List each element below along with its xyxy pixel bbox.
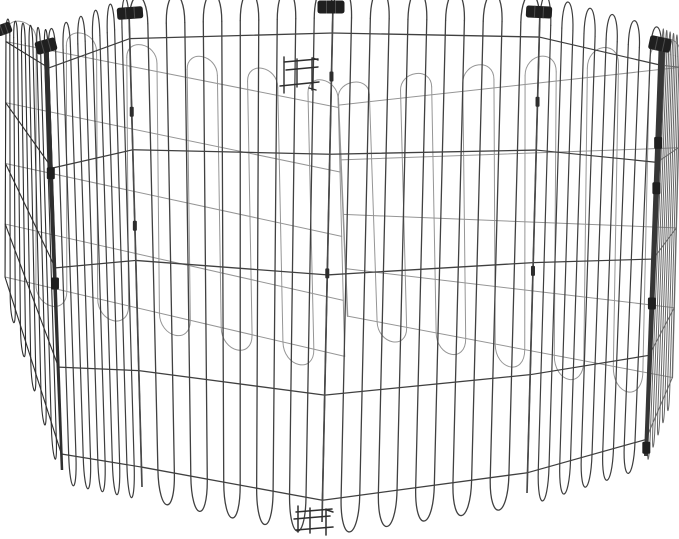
hinge-sleeve <box>531 266 535 276</box>
clip-body <box>318 1 345 14</box>
wire-pen-image <box>0 0 679 539</box>
hinge-knuckle <box>652 182 660 194</box>
clip-seam <box>534 6 535 18</box>
hinge-knuckle <box>47 167 55 179</box>
hinge-sleeve <box>325 268 329 278</box>
hinge-knuckle <box>642 442 650 454</box>
white-backdrop <box>0 0 679 539</box>
hinge-sleeve <box>133 221 137 231</box>
hinge-knuckle <box>51 277 59 289</box>
hinge-clip-front-right <box>526 5 553 18</box>
hinge-sleeve <box>130 107 134 117</box>
hinge-knuckle <box>648 298 656 310</box>
hinge-clip-front-center <box>318 1 345 14</box>
hinge-knuckle <box>654 137 662 149</box>
hinge-sleeve <box>329 72 333 82</box>
clip-seam <box>543 6 544 18</box>
clip-body <box>526 5 553 18</box>
hinge-clip-front-left <box>117 6 144 20</box>
product-photo <box>0 0 679 539</box>
hinge-sleeve <box>536 97 540 107</box>
clip-body <box>117 6 144 20</box>
